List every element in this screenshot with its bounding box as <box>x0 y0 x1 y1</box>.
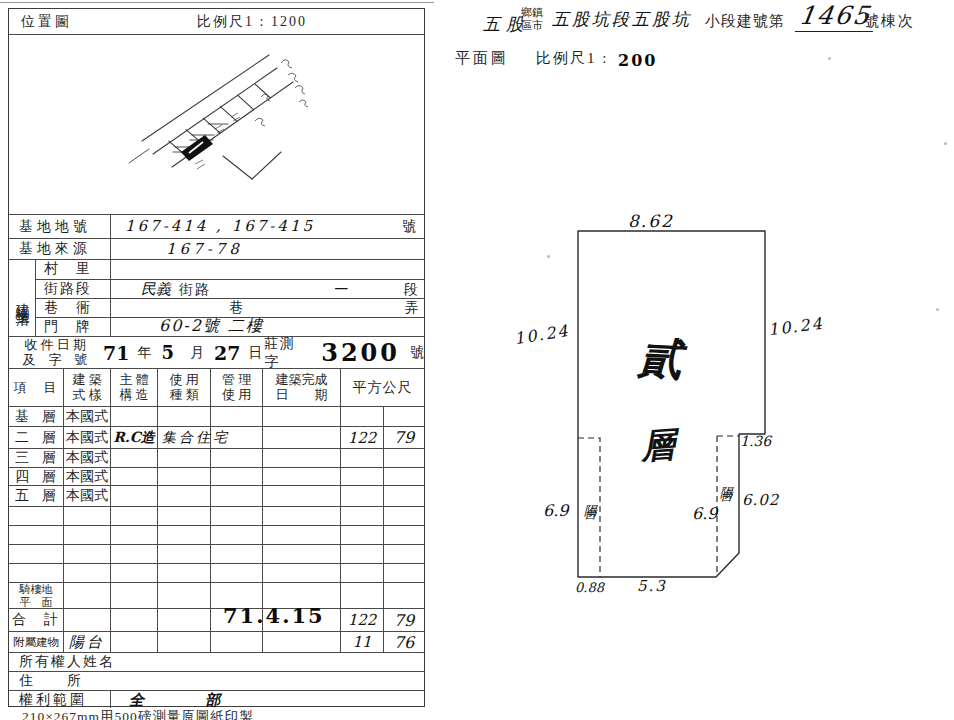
receipt-number-unit: 號 <box>410 344 424 362</box>
annex-area-dec: 76 <box>384 632 424 652</box>
village-label: 村 里 <box>36 260 111 279</box>
floor-row-base: 基 層 本國式 <box>9 406 424 426</box>
street-print: 街路 <box>179 281 211 299</box>
site-lot-suffix: 號 <box>402 218 416 236</box>
table-row: 基地來源 167-78 <box>9 238 424 259</box>
building-number-suffix: 號棟次 <box>864 12 915 31</box>
map-annotation-squiggles <box>195 60 308 169</box>
floor-structure-handwritten: R.C造 <box>111 427 158 448</box>
location-map-area <box>9 35 424 214</box>
header-style: 建 築 式 樣 <box>64 369 111 406</box>
floor-style: 本國式 <box>64 449 111 467</box>
township-label: 鄉鎮 區市 <box>521 6 543 32</box>
empty-row <box>9 506 424 525</box>
section-value-handwritten: 五股坑段五股坑 <box>552 8 692 31</box>
dim-balcony-right: 6.9 <box>692 504 717 523</box>
receipt-day-unit: 日 <box>248 344 262 362</box>
floor-style: 本國式 <box>64 468 111 485</box>
header-management: 管 理 使 用 <box>211 369 263 406</box>
scan-speck <box>547 255 550 258</box>
receipt-day: 27 <box>214 342 240 364</box>
arcade-row: 騎樓地 平 面 <box>9 582 424 608</box>
village-row: 村 里 <box>36 260 424 279</box>
dim-top: 8.62 <box>628 211 674 231</box>
annex-area-int: 11 <box>341 632 384 652</box>
total-row: 合 計 122 79 71.4.15 <box>9 608 424 631</box>
main-table-header: 項 目 建 築 式 樣 主 體 構 造 使 用 種 類 管 理 使 用 建築完成… <box>9 368 424 406</box>
header-use-type: 使 用 種 類 <box>158 369 211 406</box>
dim-right-lower: 6.02 <box>742 491 779 509</box>
receipt-word: 莊測字 <box>264 335 305 371</box>
floor-row-4: 四 層 本國式 <box>9 467 424 485</box>
dim-balcony-left: 6.9 <box>543 501 568 520</box>
subsection-label: 小段建號第 <box>705 12 785 31</box>
floor-row-3: 三 層 本國式 <box>9 448 424 467</box>
empty-row <box>9 525 424 544</box>
annex-value-handwritten: 陽台 <box>64 632 111 652</box>
site-lot-value: 167-414 , 167-415 <box>125 217 315 235</box>
floor-plan-scale-prefix: 比例尺1 : <box>536 49 608 68</box>
survey-form-panel: 位置圖 比例尺1 : 1200 <box>8 8 425 707</box>
rights-row: 權利範圍 全 部 <box>9 690 424 708</box>
floor-style: 本國式 <box>64 407 111 426</box>
street-row: 街路段 民義 街路 一 段 <box>36 279 424 299</box>
location-map-title: 位置圖 <box>21 13 72 31</box>
annex-row: 附屬建物 陽台 11 76 <box>9 631 424 652</box>
paper-spec-note: 210×267mm用500磅測量原圖紙印製 <box>22 708 254 720</box>
balcony-left-label: 陽台 <box>581 494 599 498</box>
balcony-right-label: 陽台 <box>717 476 735 480</box>
lane-row: 巷 衕 巷 弄 <box>36 298 424 317</box>
floor-style: 本國式 <box>64 427 111 448</box>
scan-speck <box>936 308 939 311</box>
floor-plan-drawing <box>510 200 850 620</box>
location-map-sketch <box>9 35 426 214</box>
street-section-print: 段 <box>404 281 418 299</box>
floor-number-char: 貳 <box>636 329 683 390</box>
site-lot-label: 基地地號 <box>9 215 111 238</box>
floor-row-2: 二 層 本國式 R.C造 集合住宅 122 79 <box>9 426 424 448</box>
receipt-row: 收 件 日 期 及 字 號 71 年 5 月 27 日 莊測字 3200 號 <box>9 336 424 368</box>
lane-label: 巷 衕 <box>36 299 111 317</box>
scan-speck <box>944 142 947 145</box>
header-area-sqm: 平方公尺 <box>341 369 424 406</box>
empty-row <box>9 544 424 563</box>
street-label: 街路段 <box>36 280 111 299</box>
floor-area-dec: 79 <box>384 427 424 448</box>
total-area-dec: 79 <box>384 609 424 631</box>
receipt-month: 5 <box>161 342 174 363</box>
owner-label: 所有權人姓名 <box>9 653 209 671</box>
alley-print: 弄 <box>405 299 419 317</box>
location-map-scale: 比例尺1 : 1200 <box>197 13 307 31</box>
dim-notch: 1.36 <box>740 433 771 449</box>
header-completion-date: 建築完成 日 期 <box>263 369 341 406</box>
receipt-month-unit: 月 <box>190 344 204 362</box>
street-name-handwritten: 民義 <box>141 280 171 299</box>
dim-bottom-mid: 5.3 <box>637 577 667 595</box>
floor-unit-char: 層 <box>639 422 676 470</box>
building-location-group: 建物坐落 村 里 街路段 民義 街路 一 段 巷 衕 <box>9 259 424 336</box>
floor-area-int: 122 <box>341 427 384 448</box>
floor-style: 本國式 <box>64 486 111 506</box>
arcade-label: 騎樓地 平 面 <box>9 583 64 608</box>
door-label: 門 牌 <box>36 318 111 336</box>
header-item: 項 目 <box>9 369 64 406</box>
total-label: 合 計 <box>9 609 64 631</box>
total-area-int: 122 <box>341 609 384 631</box>
annex-label: 附屬建物 <box>9 632 64 652</box>
lane-print: 巷 <box>229 299 243 317</box>
address-row-bottom: 住 所 <box>9 671 424 690</box>
floor-row-5: 五 層 本國式 <box>9 485 424 506</box>
owner-row: 所有權人姓名 <box>9 652 424 671</box>
receipt-year: 71 <box>103 342 129 364</box>
door-number-handwritten: 60-2號 二樓 <box>159 316 264 337</box>
scan-speck <box>828 57 831 60</box>
rights-label: 權利範圍 <box>9 691 111 708</box>
header-structure: 主 體 構 造 <box>111 369 158 406</box>
location-map-header: 位置圖 比例尺1 : 1200 <box>9 9 424 35</box>
dim-bottom-left: 0.88 <box>575 580 604 595</box>
floor-plan-scale-value: 200 <box>618 51 657 70</box>
floor-plan-title: 平面圖 <box>455 49 509 68</box>
receipt-year-unit: 年 <box>137 344 151 362</box>
site-origin-value: 167-78 <box>166 240 243 258</box>
empty-row <box>9 563 424 582</box>
receipt-label: 收 件 日 期 及 字 號 <box>9 337 101 368</box>
address-row: 門 牌 60-2號 二樓 <box>36 317 424 336</box>
building-location-group-label: 建物坐落 <box>9 260 36 336</box>
scan-edge-line <box>0 2 434 3</box>
street-section-handwritten: 一 <box>333 281 347 299</box>
scanned-survey-document: 位置圖 比例尺1 : 1200 <box>0 0 954 720</box>
site-origin-label: 基地來源 <box>9 239 111 259</box>
residence-label: 住 所 <box>9 672 209 690</box>
receipt-number: 3200 <box>321 338 400 367</box>
table-row: 基地地號 167-414 , 167-415 號 <box>9 214 424 238</box>
total-date-stamp: 71.4.15 <box>223 603 325 628</box>
